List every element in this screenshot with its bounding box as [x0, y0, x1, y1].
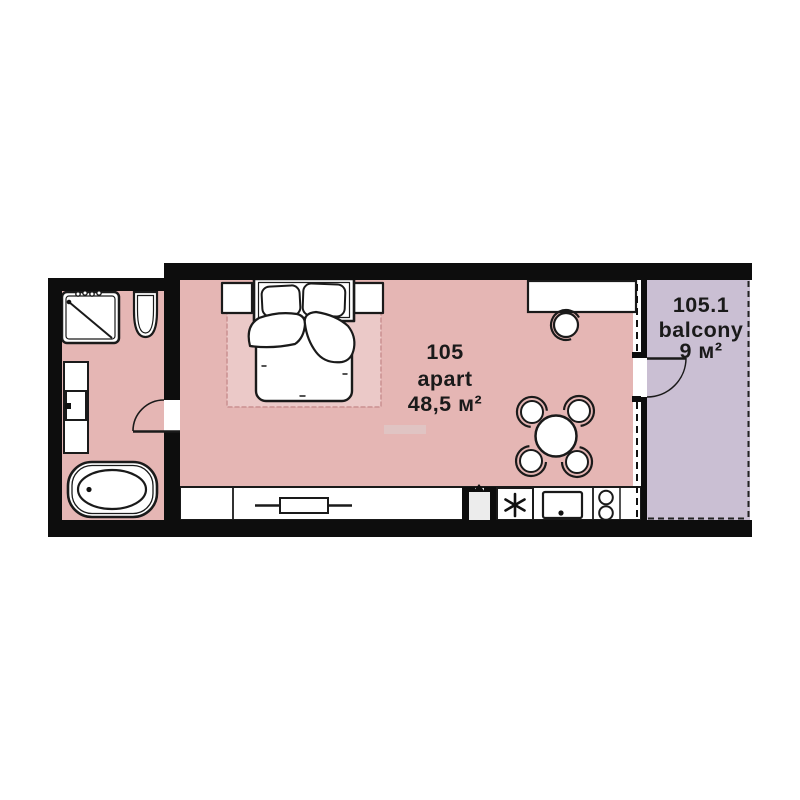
bathtub — [68, 462, 157, 517]
burner — [599, 491, 613, 505]
wall-balcony-upper — [641, 280, 647, 358]
floor-plan: 105 apart 48,5 м² 105.1 balcony 9 м² — [0, 0, 800, 800]
balcony-number-label: 105.1 — [673, 293, 729, 317]
shower-drain — [67, 300, 72, 305]
fridge — [497, 488, 533, 520]
floor-hatch-mark — [384, 425, 426, 434]
wall-bath-divider-upper — [164, 280, 180, 400]
window-jamb-top — [632, 352, 641, 358]
pillow-right — [302, 283, 345, 316]
double-bed — [249, 279, 355, 401]
wall-bottom — [48, 520, 752, 537]
balcony-area-label: 9 м² — [680, 339, 723, 363]
kitchen-strip — [180, 484, 641, 522]
dining-table — [536, 416, 577, 457]
dining-chair — [521, 401, 543, 423]
wall-top-main — [164, 263, 752, 280]
stool — [554, 313, 578, 337]
dining-chair — [566, 451, 588, 473]
vanity-sink — [64, 362, 88, 453]
desk — [528, 281, 636, 312]
entrance-door — [462, 484, 497, 522]
nightstand-left — [222, 283, 252, 313]
toilet — [134, 292, 157, 337]
shower — [62, 291, 119, 343]
floorplan-canvas: 105 apart 48,5 м² 105.1 balcony 9 м² — [0, 0, 800, 800]
dining-chair — [520, 450, 542, 472]
wall-top-bathroom — [48, 278, 180, 291]
wall-bath-divider-lower — [164, 431, 180, 520]
apartment-type-label: apart — [417, 367, 472, 391]
wall-left — [48, 278, 62, 537]
bed-area — [222, 279, 383, 407]
sink-drain — [558, 510, 563, 515]
dining-chair — [568, 400, 590, 422]
burner — [599, 506, 613, 520]
bathtub-drain — [86, 487, 91, 492]
apartment-area-label: 48,5 м² — [408, 392, 482, 416]
window-jamb-bottom — [632, 396, 641, 402]
apartment-number-label: 105 — [426, 340, 463, 364]
nightstand-right — [354, 283, 383, 313]
wall-balcony-lower — [641, 397, 647, 520]
duvet-fold-left — [249, 313, 305, 347]
faucet-icon — [65, 403, 71, 409]
